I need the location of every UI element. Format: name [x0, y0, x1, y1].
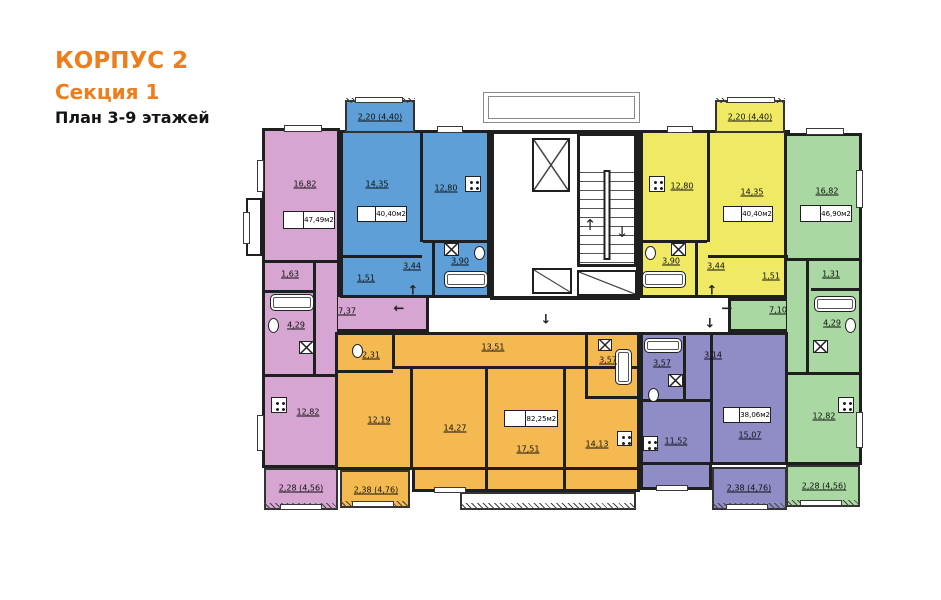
- stamp-number-cell: [505, 411, 526, 426]
- wall-partition: [264, 290, 313, 293]
- window: [437, 126, 463, 133]
- entrance-arrow-violet: ↓: [705, 317, 716, 332]
- wall-partition: [786, 372, 860, 375]
- bathtub-icon: [270, 294, 314, 311]
- toilet-icon: [845, 318, 856, 333]
- area-stamp-green: 46,90м2: [800, 205, 852, 222]
- window: [434, 487, 466, 493]
- window: [727, 97, 775, 103]
- sink-unit-icon: [668, 374, 683, 387]
- room-label-pink-storage: 1,63: [281, 270, 299, 279]
- entrance-arrow-green: →: [722, 302, 733, 317]
- window: [352, 501, 394, 507]
- stair-down-arrow: ↓: [616, 223, 629, 241]
- stove-icon: [649, 176, 665, 192]
- sink-unit-icon: [671, 243, 686, 256]
- wall-partition: [563, 369, 566, 492]
- stamp-area-value: 40,40м2: [742, 207, 772, 221]
- stove-icon: [838, 397, 854, 413]
- wall-partition: [585, 334, 588, 398]
- sink-unit-icon: [598, 339, 612, 351]
- bathtub-icon: [642, 271, 686, 288]
- toilet-icon: [474, 246, 485, 260]
- area-stamp-orange: 82,25м2: [504, 410, 558, 427]
- stamp-area-value: 82,25м2: [526, 411, 557, 426]
- staircase: [577, 133, 637, 267]
- stamp-number-cell: [358, 207, 376, 221]
- area-stamp-violet: 38,06м2: [723, 407, 771, 423]
- room-label-yellow-kitchen-living: 12,80: [671, 182, 694, 191]
- room-label-orange-kitchen: 14,13: [586, 440, 609, 449]
- plan-subtitle: План 3-9 этажей: [55, 108, 210, 127]
- window: [257, 160, 264, 192]
- service-shaft-right: [577, 270, 637, 296]
- shaft-outline-inner: [488, 96, 635, 119]
- bathtub-icon: [814, 296, 856, 312]
- entrance-arrow-orange: ↓: [541, 313, 552, 328]
- floor-plan-page: КОРПУС 2 Секция 1 План 3-9 этажей ↑ ↓: [0, 0, 941, 600]
- room-label-yellow-room: 14,35: [741, 188, 764, 197]
- room-label-green-storage: 1,31: [822, 270, 840, 279]
- window: [806, 128, 844, 135]
- wall-partition: [410, 369, 413, 470]
- window: [355, 97, 403, 103]
- stamp-area-value: 46,90м2: [821, 206, 851, 221]
- room-label-blue-room: 14,35: [366, 180, 389, 189]
- window: [800, 500, 842, 506]
- room-label-blue-kitchen-living: 12,80: [435, 184, 458, 193]
- stamp-number-cell: [724, 408, 740, 422]
- toilet-icon: [648, 388, 659, 402]
- wall-partition: [811, 288, 860, 291]
- stove-icon: [271, 397, 287, 413]
- entrance-arrow-yellow: ↑: [707, 284, 718, 299]
- stamp-area-value: 40,40м2: [376, 207, 406, 221]
- stamp-number-cell: [724, 207, 742, 221]
- room-label-violet-bathroom: 3,57: [653, 359, 671, 368]
- room-label-yellow-bathroom: 3,90: [662, 257, 680, 266]
- wall-partition: [806, 260, 809, 374]
- stamp-area-value: 47,49м2: [304, 212, 334, 228]
- room-label-pink-kitchen: 12,82: [297, 408, 320, 417]
- balcony-hatch: [460, 503, 636, 509]
- room-label-violet-room: 15,07: [739, 431, 762, 440]
- room-label-blue-bathroom: 3,90: [451, 257, 469, 266]
- wall-partition: [342, 255, 422, 258]
- balcony-label-green: 2,28 (4,56): [802, 482, 846, 491]
- balcony-label-yellow: 2,20 (4,40): [728, 113, 772, 122]
- room-label-pink-bathroom: 4,29: [287, 321, 305, 330]
- balcony-label-pink: 2,28 (4,56): [279, 484, 323, 493]
- room-label-pink-hall: 7,37: [338, 307, 356, 316]
- section-title: Секция 1: [55, 80, 159, 104]
- room-label-orange-room1: 12,19: [368, 416, 391, 425]
- stamp-number-cell: [801, 206, 821, 221]
- room-label-blue-hall: 3,44: [403, 262, 421, 271]
- stair-up-arrow: ↑: [584, 216, 597, 234]
- service-shaft-left: [532, 268, 572, 294]
- window: [257, 415, 264, 451]
- window: [667, 126, 693, 133]
- window: [243, 212, 250, 244]
- stove-icon: [465, 176, 481, 192]
- room-label-yellow-hall: 3,44: [707, 262, 725, 271]
- room-label-pink-living: 16,82: [294, 180, 317, 189]
- wall-partition: [392, 334, 395, 369]
- wall-partition: [395, 366, 638, 369]
- unit-green-hall: [728, 298, 786, 332]
- sink-unit-icon: [299, 341, 314, 354]
- room-label-green-living: 16,82: [816, 187, 839, 196]
- entrance-arrow-blue: ↑: [408, 284, 419, 299]
- wall-partition: [683, 336, 686, 399]
- building-title: КОРПУС 2: [55, 48, 188, 74]
- window: [726, 504, 768, 510]
- elevator-x-icon: [534, 140, 568, 190]
- room-label-violet-hall: 3,14: [704, 351, 722, 360]
- area-stamp-blue: 40,40м2: [357, 206, 407, 222]
- room-label-green-kitchen: 12,82: [813, 412, 836, 421]
- room-label-orange-room2: 14,27: [444, 424, 467, 433]
- room-label-blue-storage: 1,51: [357, 274, 375, 283]
- window: [856, 412, 863, 448]
- elevator-shaft: [532, 138, 570, 192]
- stove-icon: [617, 431, 632, 446]
- wall-partition: [695, 243, 698, 298]
- balcony-label-orange: 2,38 (4,76): [354, 486, 398, 495]
- wall-partition: [786, 258, 860, 261]
- balcony-label-blue: 2,20 (4,40): [358, 113, 402, 122]
- wall-partition: [707, 132, 710, 242]
- sink-unit-icon: [444, 243, 459, 256]
- stamp-number-cell: [284, 212, 304, 228]
- room-label-green-hall: 7,10: [769, 306, 787, 315]
- window: [284, 125, 322, 132]
- wall-partition: [264, 374, 338, 377]
- stamp-area-value: 38,06м2: [740, 408, 770, 422]
- room-label-violet-kitchen: 11,52: [665, 437, 688, 446]
- room-label-orange-wc: 2,31: [362, 351, 380, 360]
- room-label-green-bathroom: 4,29: [823, 319, 841, 328]
- toilet-icon: [645, 246, 656, 260]
- room-label-orange-bathroom: 3,57: [599, 356, 617, 365]
- stair-stringer: [604, 170, 611, 260]
- balcony-label-violet: 2,38 (4,76): [727, 484, 771, 493]
- bathtub-icon: [615, 349, 632, 385]
- wall-partition: [485, 369, 488, 492]
- wall-partition: [432, 243, 435, 298]
- window: [280, 504, 322, 510]
- wall-partition: [313, 262, 316, 376]
- sink-unit-icon: [813, 340, 828, 353]
- wall-partition: [420, 132, 423, 242]
- window: [856, 170, 863, 208]
- room-label-orange-corridor: 13,51: [482, 343, 505, 352]
- toilet-icon: [268, 318, 279, 333]
- room-label-yellow-storage: 1,51: [762, 272, 780, 281]
- stove-icon: [643, 436, 658, 451]
- bathtub-icon: [444, 271, 488, 288]
- wall-partition: [708, 255, 788, 258]
- area-stamp-yellow: 40,40м2: [723, 206, 773, 222]
- entrance-arrow-pink: ←: [394, 302, 405, 317]
- wall-partition: [585, 396, 638, 399]
- room-label-orange-room3: 17,51: [517, 445, 540, 454]
- window: [656, 485, 688, 491]
- bathtub-icon: [644, 338, 682, 353]
- wall-partition: [264, 260, 338, 263]
- wall-partition: [337, 370, 393, 373]
- area-stamp-pink: 47,49м2: [283, 211, 335, 229]
